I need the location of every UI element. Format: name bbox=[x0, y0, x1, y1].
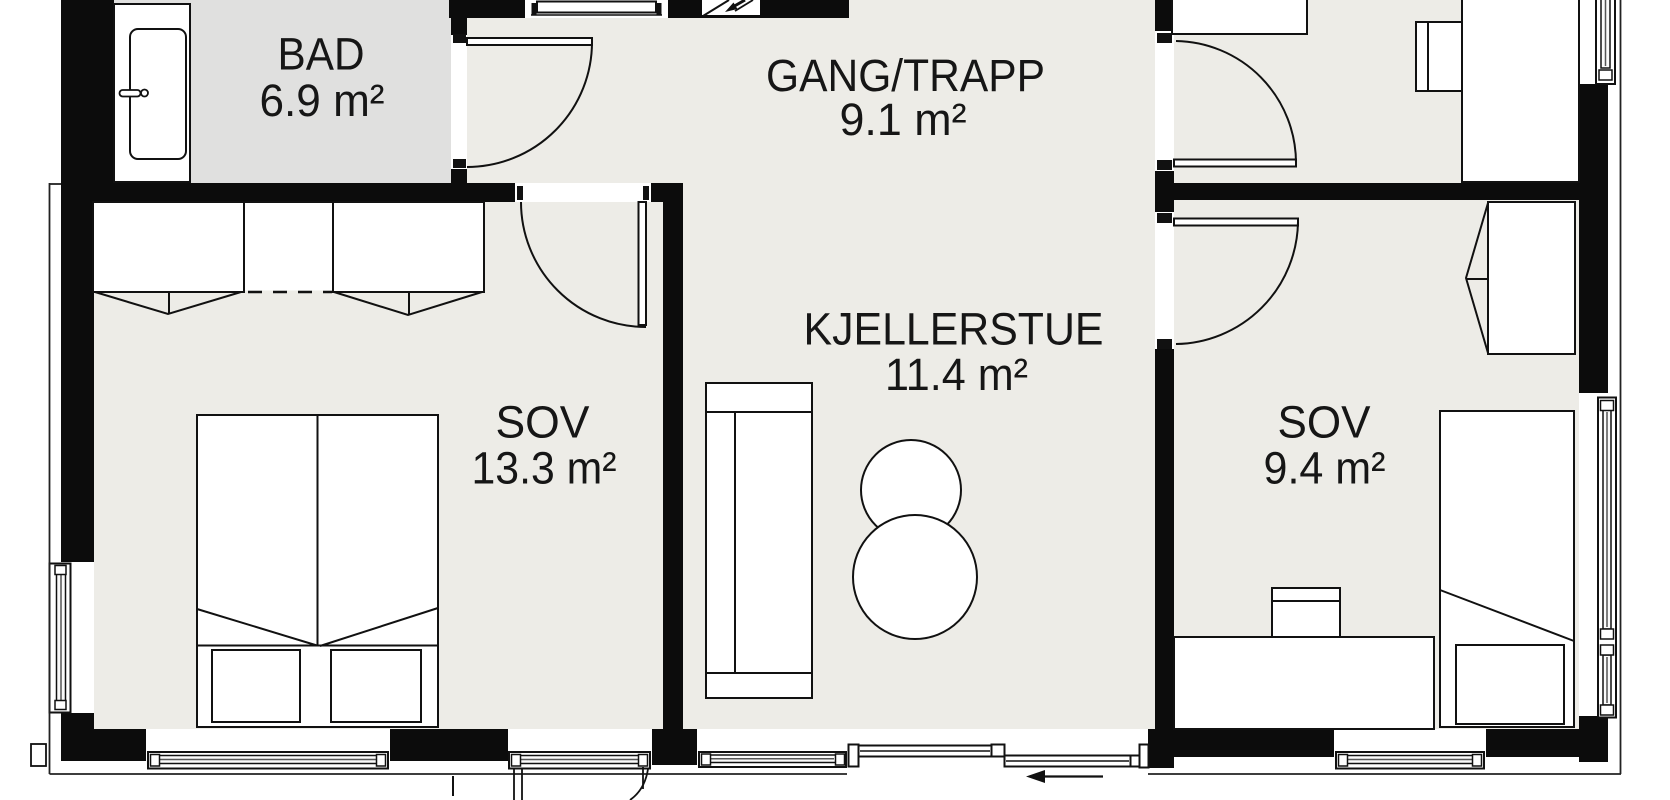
svg-text:13.3 m²: 13.3 m² bbox=[472, 443, 617, 494]
svg-text:11.4 m²: 11.4 m² bbox=[885, 349, 1028, 400]
svg-text:KJELLERSTUE: KJELLERSTUE bbox=[804, 304, 1104, 355]
svg-text:9.4 m²: 9.4 m² bbox=[1264, 443, 1386, 494]
svg-text:SOV: SOV bbox=[496, 397, 591, 448]
svg-text:BAD: BAD bbox=[278, 29, 365, 80]
svg-text:9.1 m²: 9.1 m² bbox=[840, 94, 967, 145]
svg-text:SOV: SOV bbox=[1278, 397, 1372, 448]
svg-text:6.9 m²: 6.9 m² bbox=[260, 75, 385, 126]
